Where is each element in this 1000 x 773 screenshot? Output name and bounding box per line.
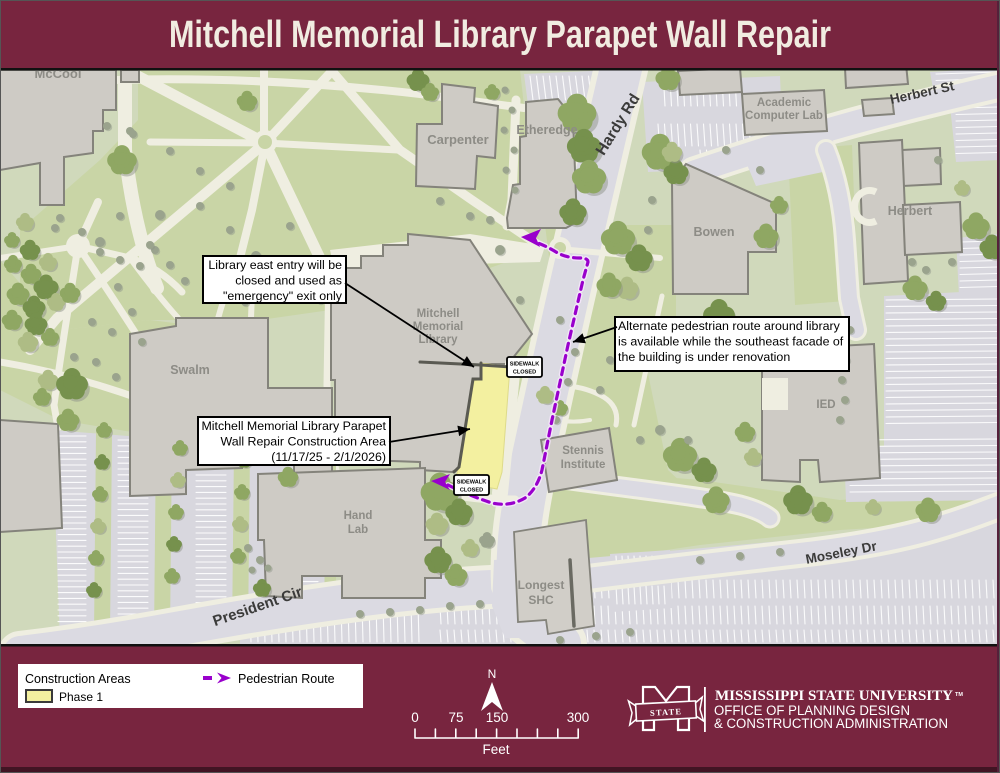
svg-text:Bowen: Bowen [694, 225, 735, 239]
svg-text:is available while the southea: is available while the southeast facade … [618, 335, 844, 349]
svg-text:"emergency" exit only: "emergency" exit only [223, 289, 343, 303]
svg-text:Library east entry will be: Library east entry will be [208, 258, 342, 272]
svg-text:Hand: Hand [344, 510, 373, 522]
svg-text:Herbert: Herbert [888, 204, 933, 218]
svg-text:Swalm: Swalm [170, 363, 210, 377]
svg-text:Mitchell: Mitchell [417, 308, 460, 320]
svg-text:N: N [488, 667, 497, 681]
svg-text:the building is under renovati: the building is under renovation [618, 350, 790, 364]
svg-text:closed and used as: closed and used as [235, 274, 342, 288]
svg-text:Mitchell Memorial Library Para: Mitchell Memorial Library Parapet Wall R… [169, 14, 831, 56]
svg-text:Alternate pedestrian route aro: Alternate pedestrian route around librar… [618, 319, 841, 333]
svg-text:Computer Lab: Computer Lab [745, 110, 823, 122]
svg-text:Stennis: Stennis [562, 445, 604, 457]
svg-text:75: 75 [448, 710, 463, 725]
svg-text:Feet: Feet [482, 742, 509, 757]
svg-text:Phase 1: Phase 1 [59, 690, 103, 704]
svg-text:SIDEWALK: SIDEWALK [457, 480, 487, 486]
svg-text:Academic: Academic [757, 97, 812, 109]
svg-text:150: 150 [486, 710, 509, 725]
svg-text:CLOSED: CLOSED [513, 370, 536, 376]
svg-text:& CONSTRUCTION ADMINISTRATION: & CONSTRUCTION ADMINISTRATION [714, 716, 948, 731]
svg-text:CLOSED: CLOSED [460, 488, 483, 494]
svg-text:SHC: SHC [528, 593, 554, 607]
svg-text:STATE: STATE [650, 706, 683, 718]
svg-text:0: 0 [411, 710, 419, 725]
svg-text:Carpenter: Carpenter [427, 132, 488, 147]
svg-text:Longest: Longest [518, 578, 565, 592]
svg-text:Institute: Institute [561, 459, 606, 471]
svg-text:Etheredge: Etheredge [516, 123, 577, 137]
svg-text:TM: TM [955, 692, 963, 698]
svg-text:Lab: Lab [348, 524, 368, 536]
svg-text:SIDEWALK: SIDEWALK [510, 362, 540, 368]
svg-text:MISSISSIPPI STATE UNIVERSITY: MISSISSIPPI STATE UNIVERSITY [715, 688, 953, 704]
svg-text:300: 300 [567, 710, 590, 725]
svg-text:Pedestrian Route: Pedestrian Route [238, 672, 335, 686]
svg-text:(11/17/25 - 2/1/2026): (11/17/25 - 2/1/2026) [271, 450, 386, 464]
svg-text:IED: IED [816, 399, 835, 411]
svg-text:Construction Areas: Construction Areas [25, 672, 131, 686]
svg-text:Mitchell Memorial Library Para: Mitchell Memorial Library Parapet [201, 419, 386, 433]
svg-text:Wall Repair Construction Area: Wall Repair Construction Area [220, 435, 386, 449]
